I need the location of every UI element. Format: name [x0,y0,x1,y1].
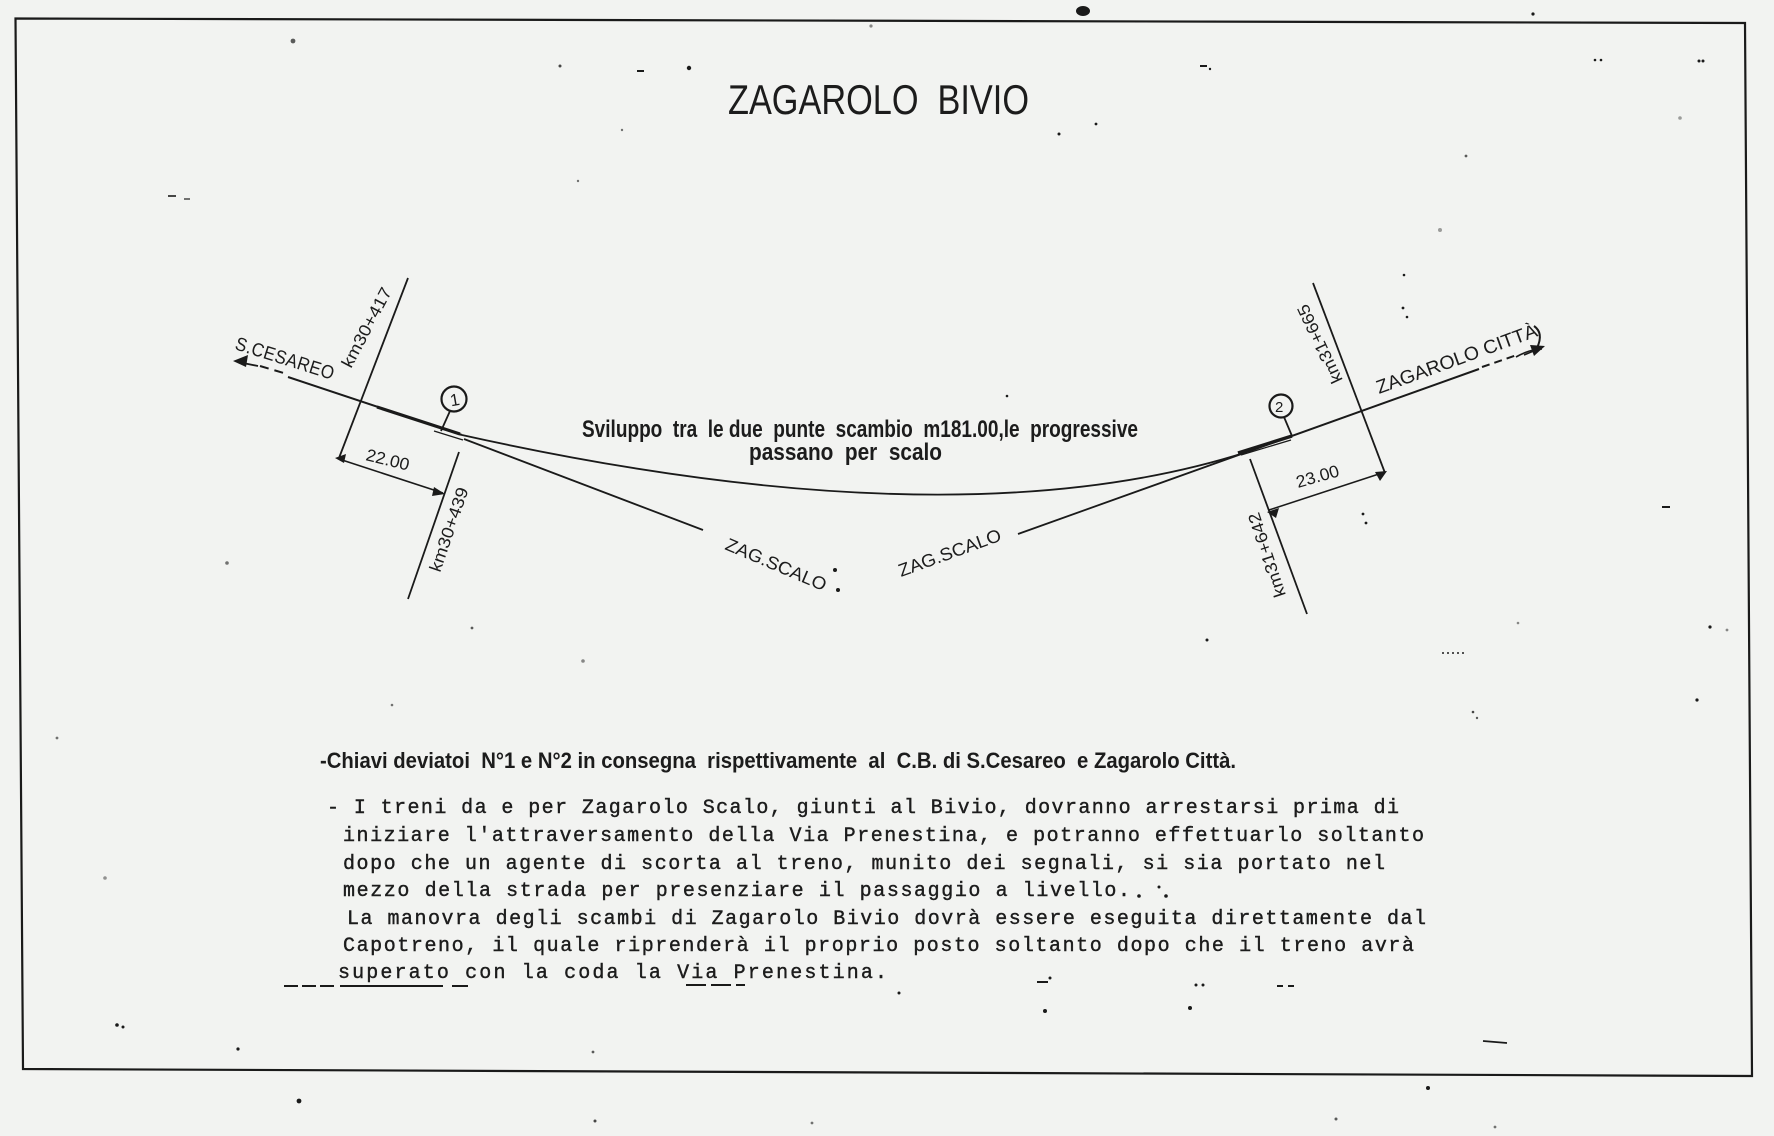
svg-text:S.CESAREO: S.CESAREO [232,334,337,385]
svg-text:23.00: 23.00 [1294,461,1342,491]
svg-text:iniziare l'attraversamento del: iniziare l'attraversamento della Via Pre… [343,825,1424,848]
svg-text:La manovra degli scambi di Zag: La manovra degli scambi di Zagarolo Bivi… [347,908,1426,931]
svg-text:superato con la coda la Via Pr: superato con la coda la Via Prenestina. [338,962,887,985]
svg-text:ZAG.SCALO: ZAG.SCALO [896,525,1004,581]
svg-text:km30+417: km30+417 [338,284,396,371]
svg-text:passano per scalo: passano per scalo [749,439,942,466]
svg-text:km31+665: km31+665 [1293,301,1346,386]
svg-text:dopo che un agente di scorta a: dopo che un agente di scorta al treno, m… [343,853,1385,876]
svg-text:1: 1 [448,390,461,410]
svg-text:ZAGAROLO CITTÀ: ZAGAROLO CITTÀ [1374,321,1541,399]
svg-text:-Chiavi deviatoi N°1 e N°2 in: -Chiavi deviatoi N°1 e N°2 in consegna r… [320,748,1236,773]
svg-text:- I treni da e per Zagarolo Sc: - I treni da e per Zagarolo Scalo, giunt… [327,797,1399,820]
svg-text:ZAG.SCALO: ZAG.SCALO [722,534,829,595]
svg-text:mezzo della strada per presenz: mezzo della strada per presenziare il pa… [343,880,1130,903]
svg-text:Capotreno, il quale riprenderà: Capotreno, il quale riprenderà il propri… [343,935,1414,958]
svg-text:ZAGAROLO BIVIO: ZAGAROLO BIVIO [728,76,1029,123]
svg-text:2: 2 [1275,399,1283,416]
svg-text:km31+642: km31+642 [1245,510,1290,600]
